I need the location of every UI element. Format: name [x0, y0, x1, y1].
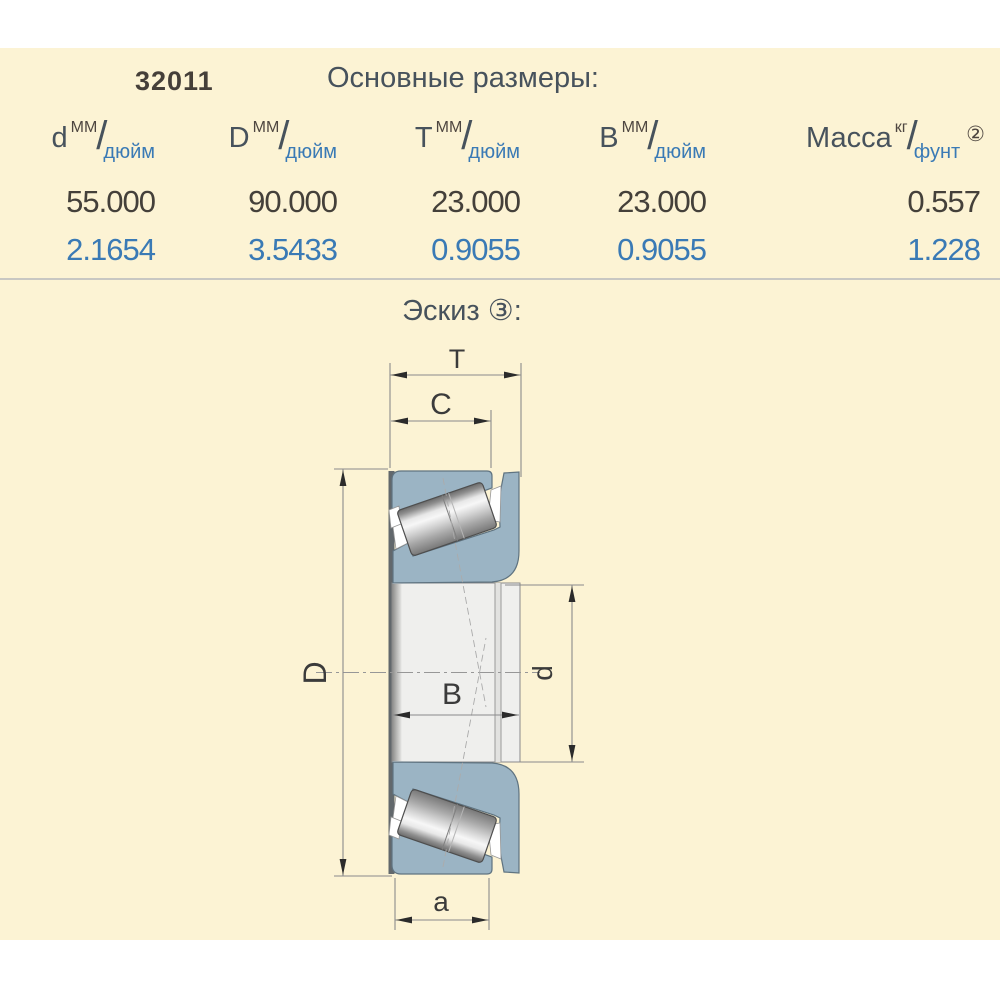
unit-mm: ММ	[436, 120, 463, 136]
bearing-cross-section-drawing: T C D d	[0, 330, 1000, 940]
dim-symbol: d	[51, 124, 67, 153]
value-T-mm: 23.000	[431, 184, 520, 220]
value-d-mm: 55.000	[66, 184, 155, 220]
unit-inch: дюйм	[285, 142, 337, 162]
value-mass-kg: 0.557	[907, 184, 980, 220]
unit-mm: ММ	[253, 120, 280, 136]
column-header-T: T ММ / дюйм	[415, 116, 520, 162]
value-D-mm: 90.000	[248, 184, 337, 220]
dimension-a: a	[395, 878, 489, 930]
dimension-T: T	[390, 344, 521, 477]
value-B-mm: 23.000	[617, 184, 706, 220]
value-T-inch: 0.9055	[431, 232, 520, 268]
dim-symbol: D	[229, 124, 250, 153]
bearing-section-upper	[389, 471, 519, 583]
label-T: T	[449, 344, 466, 374]
unit-inch: дюйм	[654, 142, 706, 162]
column-header-d: d ММ / дюйм	[51, 116, 155, 162]
dimension-C: C	[391, 388, 491, 468]
dim-symbol: Масса	[806, 124, 892, 153]
bearing-catalog-page: 32011 Основные размеры: d ММ / дюйм D ММ…	[0, 0, 1000, 1000]
label-C: C	[430, 388, 452, 421]
unit-inch: дюйм	[468, 142, 520, 162]
label-B: B	[442, 678, 462, 711]
footnote-2-icon: ②	[966, 124, 985, 145]
column-header-mass: Масса кг / фунт ②	[806, 116, 985, 162]
dim-symbol: B	[599, 124, 618, 153]
dim-symbol: T	[415, 124, 433, 153]
unit-mm: ММ	[622, 120, 649, 136]
bearing-code: 32011	[135, 66, 214, 97]
column-header-B: B ММ / дюйм	[599, 116, 706, 162]
unit-lb: фунт	[914, 142, 960, 162]
column-header-D: D ММ / дюйм	[229, 116, 337, 162]
label-d: d	[527, 665, 558, 681]
dimensions-title: Основные размеры:	[327, 62, 599, 95]
value-D-inch: 3.5433	[248, 232, 337, 268]
value-mass-lb: 1.228	[907, 232, 980, 268]
sketch-title: Эскиз ③:	[0, 293, 924, 328]
bearing-section-lower	[389, 762, 519, 874]
value-d-inch: 2.1654	[66, 232, 155, 268]
value-B-inch: 0.9055	[617, 232, 706, 268]
unit-mm: ММ	[71, 120, 98, 136]
unit-inch: дюйм	[103, 142, 155, 162]
label-a: a	[433, 886, 449, 917]
label-D: D	[297, 661, 333, 684]
